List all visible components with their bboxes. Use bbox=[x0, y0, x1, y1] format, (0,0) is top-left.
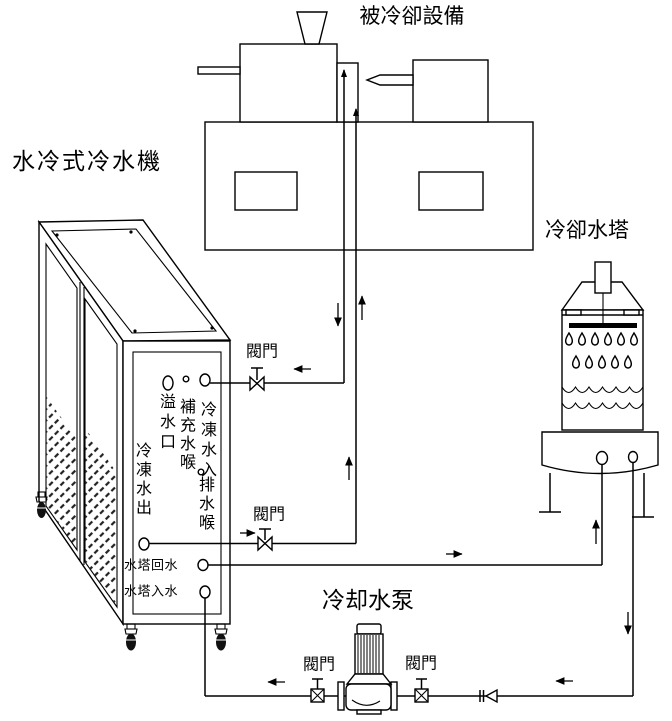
sprinkler-bar bbox=[569, 323, 637, 328]
tower-louver-cap bbox=[566, 310, 581, 315]
basin-outlet-port bbox=[629, 452, 638, 463]
tower-return-port-icon bbox=[198, 560, 208, 571]
makeup-hose-label: 補充水喉 bbox=[180, 397, 196, 472]
equipment-unit-hopper-body bbox=[240, 44, 337, 122]
equipment-window-right bbox=[419, 172, 483, 210]
valve-label: 閥門 bbox=[405, 654, 437, 673]
pump-flange bbox=[338, 682, 344, 710]
pump-volute bbox=[346, 684, 391, 710]
chilled-water-in-label: 冷凍水入 bbox=[201, 400, 217, 479]
chilled-in-port-icon bbox=[200, 374, 210, 386]
valve-label: 閥門 bbox=[303, 655, 335, 674]
tower-fan-motor bbox=[595, 262, 611, 293]
chiller-label: 水冷式冷水機 bbox=[12, 149, 162, 175]
equipment-side-bar bbox=[198, 67, 240, 74]
makeup-port-icon bbox=[183, 376, 189, 382]
chilled-out-port-icon bbox=[139, 538, 149, 550]
tower-inlet-label: 水塔入水 bbox=[124, 585, 178, 600]
pump-flange bbox=[391, 682, 397, 710]
diagram-page: 水冷式冷水機 被冷卻設備 冷卻水塔 冷却水泵 閥門 閥門 閥門 閥門 溢水口 補… bbox=[0, 0, 672, 721]
screw-dot bbox=[210, 326, 213, 329]
overflow-port-icon bbox=[163, 376, 173, 390]
equipment-label: 被冷卻設備 bbox=[360, 4, 465, 28]
screw-dot bbox=[55, 233, 58, 236]
equipment-unit-right-body bbox=[413, 60, 488, 122]
chiller-system-diagram: 水冷式冷水機 被冷卻設備 冷卻水塔 冷却水泵 閥門 閥門 閥門 閥門 溢水口 補… bbox=[0, 0, 672, 721]
valve-label: 閥門 bbox=[246, 342, 278, 361]
screw-dot bbox=[133, 329, 136, 332]
pump-motor-cap bbox=[357, 624, 381, 634]
chilled-water-out-label: 冷凍水出 bbox=[136, 441, 152, 517]
drain-hose-label: 排水喉 bbox=[199, 475, 215, 532]
valve-label: 閥門 bbox=[253, 505, 285, 524]
tower-label: 冷卻水塔 bbox=[545, 218, 629, 242]
pump-shoulder bbox=[347, 674, 391, 684]
pump-label: 冷却水泵 bbox=[322, 588, 414, 614]
tower-return-label: 水塔回水 bbox=[124, 559, 178, 574]
tower-inlet-port-icon bbox=[200, 586, 210, 598]
basin-outlet-port bbox=[597, 452, 608, 465]
screw-dot bbox=[129, 230, 132, 233]
pump-foot bbox=[357, 710, 381, 714]
equipment-window-left bbox=[235, 172, 297, 210]
overflow-port-label: 溢水口 bbox=[160, 392, 176, 451]
tower-louver-cap bbox=[624, 310, 639, 315]
